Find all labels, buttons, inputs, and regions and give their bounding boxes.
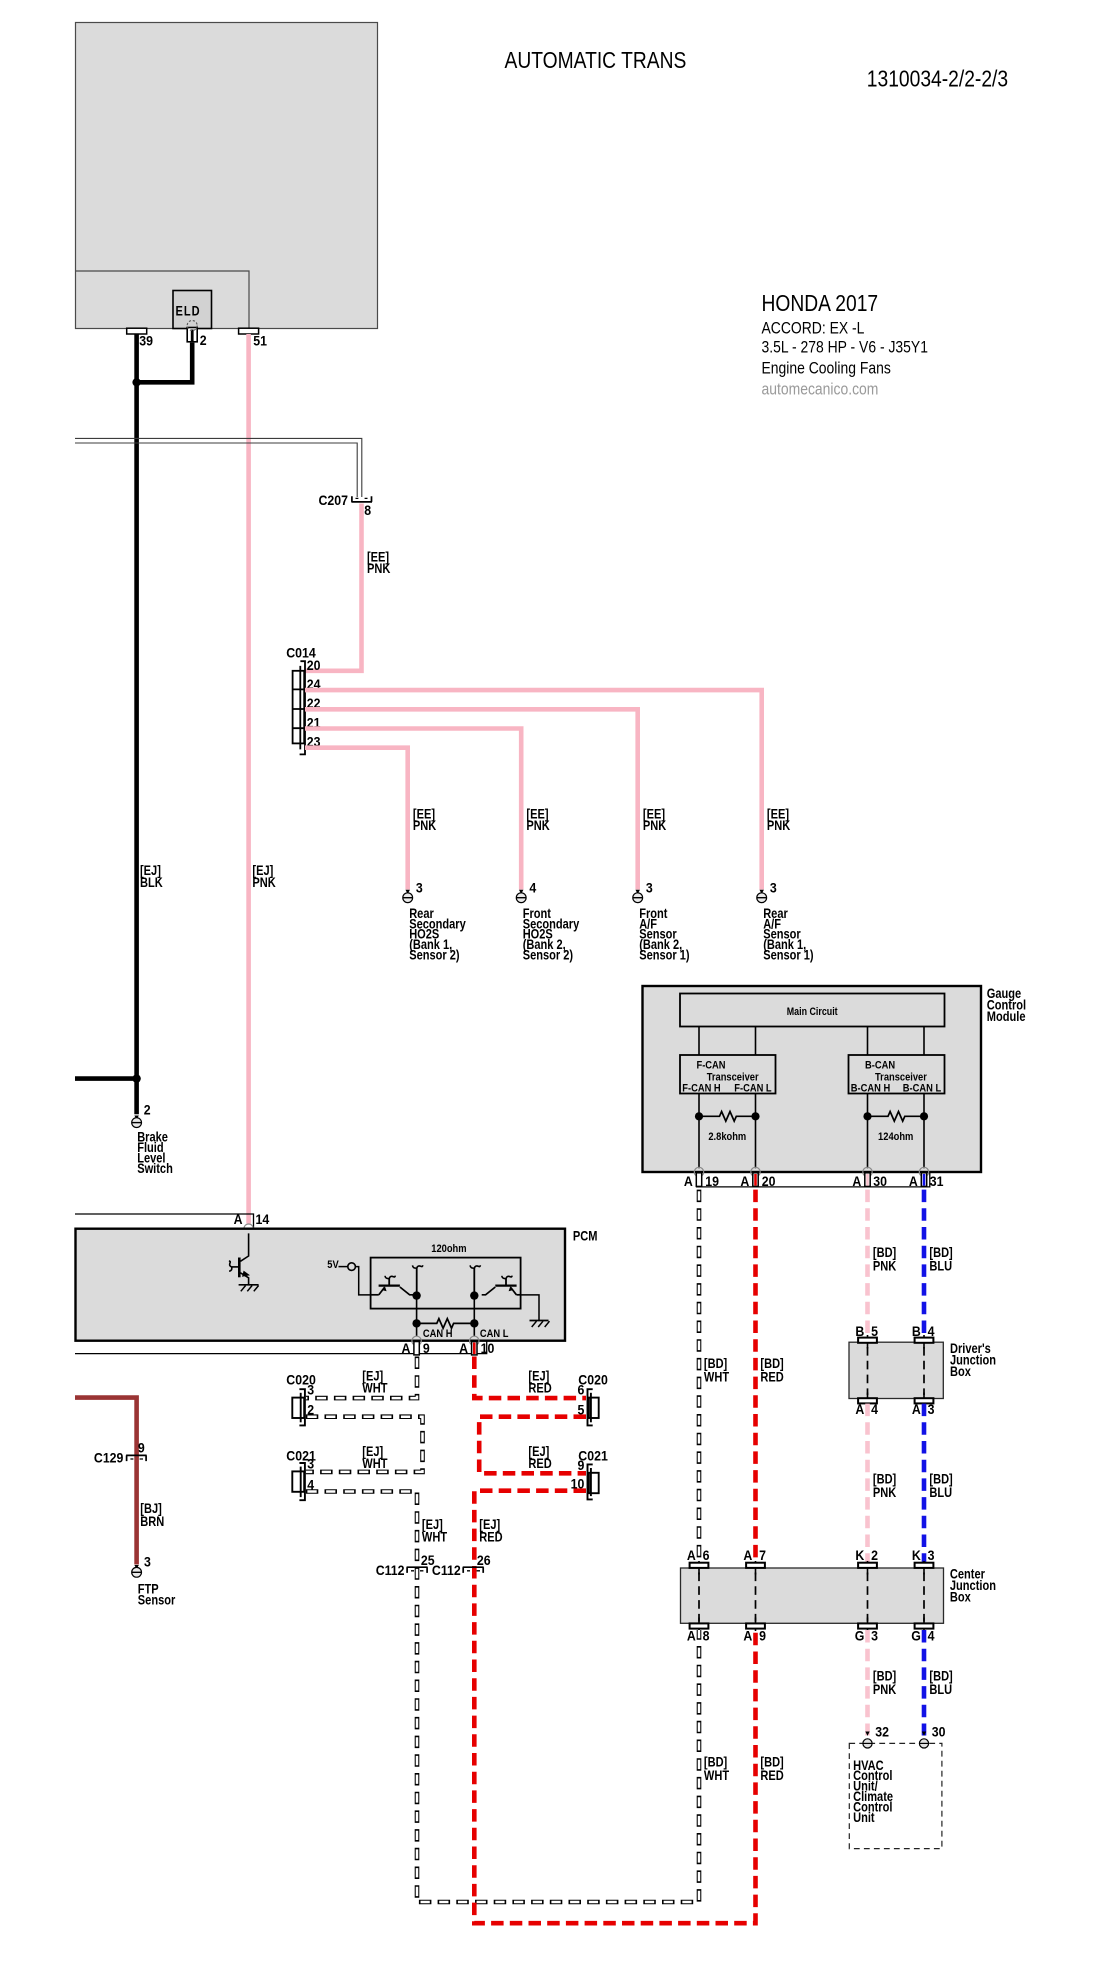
svg-text:C129: C129: [94, 1450, 124, 1466]
svg-text:39: 39: [139, 332, 153, 348]
svg-text:3: 3: [307, 1382, 314, 1398]
svg-text:BRN: BRN: [140, 1514, 164, 1529]
svg-text:Sensor: Sensor: [138, 1592, 176, 1607]
svg-text:7: 7: [759, 1547, 766, 1563]
svg-text:9: 9: [138, 1440, 145, 1456]
svg-text:6: 6: [703, 1547, 710, 1563]
svg-text:3: 3: [770, 880, 777, 896]
svg-text:ELD: ELD: [176, 304, 201, 319]
svg-text:Sensor 2): Sensor 2): [409, 947, 459, 962]
svg-text:WHT: WHT: [362, 1380, 388, 1395]
svg-text:A: A: [459, 1340, 468, 1356]
svg-text:4: 4: [871, 1401, 878, 1417]
svg-text:Unit: Unit: [853, 1810, 874, 1825]
svg-text:8: 8: [364, 502, 371, 518]
svg-text:A: A: [687, 1628, 696, 1644]
svg-text:Box: Box: [950, 1364, 971, 1379]
svg-text:BLK: BLK: [140, 875, 163, 890]
svg-text:WHT: WHT: [422, 1529, 448, 1544]
svg-text:3: 3: [928, 1547, 935, 1563]
svg-text:PNK: PNK: [252, 875, 275, 890]
svg-text:9: 9: [423, 1340, 430, 1356]
svg-text:HONDA 2017: HONDA 2017: [762, 290, 879, 316]
svg-text:5: 5: [871, 1323, 878, 1339]
svg-text:A: A: [852, 1173, 861, 1189]
svg-text:B: B: [912, 1323, 921, 1339]
svg-text:Switch: Switch: [137, 1161, 173, 1176]
svg-text:WHT: WHT: [704, 1768, 730, 1783]
svg-text:F-CAN: F-CAN: [697, 1060, 726, 1072]
svg-text:14: 14: [256, 1211, 270, 1227]
svg-text:20: 20: [307, 657, 321, 673]
svg-text:51: 51: [253, 332, 267, 348]
svg-text:RED: RED: [528, 1456, 551, 1471]
svg-text:2: 2: [200, 332, 207, 348]
svg-text:F-CAN H: F-CAN H: [682, 1083, 720, 1095]
svg-text:26: 26: [477, 1552, 491, 1568]
svg-text:Sensor 1): Sensor 1): [639, 947, 689, 962]
svg-text:A: A: [684, 1173, 693, 1189]
svg-text:2: 2: [144, 1102, 151, 1118]
svg-text:BLU: BLU: [929, 1485, 952, 1500]
svg-text:3: 3: [928, 1401, 935, 1417]
svg-text:31: 31: [930, 1173, 944, 1189]
svg-text:A: A: [401, 1340, 410, 1356]
svg-text:F-CAN L: F-CAN L: [734, 1083, 772, 1095]
svg-text:2: 2: [307, 1402, 314, 1418]
svg-text:C112: C112: [376, 1562, 405, 1578]
svg-text:6: 6: [578, 1382, 585, 1398]
svg-text:Box: Box: [950, 1589, 971, 1604]
svg-text:PNK: PNK: [643, 818, 666, 833]
svg-text:K: K: [912, 1547, 921, 1563]
svg-text:4: 4: [928, 1323, 935, 1339]
svg-text:PNK: PNK: [526, 818, 549, 833]
svg-text:A: A: [740, 1173, 749, 1189]
svg-text:PNK: PNK: [413, 818, 436, 833]
svg-text:B-CAN H: B-CAN H: [851, 1083, 890, 1095]
svg-text:WHT: WHT: [704, 1369, 730, 1384]
svg-text:3: 3: [307, 1456, 314, 1472]
svg-text:5V: 5V: [327, 1259, 338, 1271]
svg-text:30: 30: [932, 1724, 946, 1740]
svg-text:19: 19: [705, 1173, 719, 1189]
svg-text:4: 4: [928, 1628, 935, 1644]
svg-text:10: 10: [481, 1340, 495, 1356]
svg-text:A: A: [743, 1547, 752, 1563]
svg-text:C112: C112: [432, 1562, 461, 1578]
svg-text:3: 3: [646, 880, 653, 896]
svg-text:4: 4: [529, 880, 536, 896]
svg-text:B-CAN L: B-CAN L: [903, 1083, 942, 1095]
svg-text:Module: Module: [987, 1009, 1026, 1024]
svg-text:3: 3: [144, 1554, 151, 1570]
svg-text:BLU: BLU: [929, 1682, 952, 1697]
svg-text:RED: RED: [479, 1529, 502, 1544]
svg-text:PCM: PCM: [573, 1228, 598, 1243]
svg-text:PNK: PNK: [767, 818, 790, 833]
svg-text:PNK: PNK: [873, 1259, 896, 1274]
svg-text:A: A: [855, 1401, 864, 1417]
svg-text:RED: RED: [760, 1768, 783, 1783]
svg-text:K: K: [855, 1547, 864, 1563]
svg-text:C207: C207: [319, 492, 349, 508]
svg-text:PNK: PNK: [367, 561, 390, 576]
svg-text:A: A: [909, 1173, 918, 1189]
svg-text:RED: RED: [528, 1380, 551, 1395]
svg-text:G: G: [911, 1628, 921, 1644]
svg-text:Engine Cooling Fans: Engine Cooling Fans: [762, 359, 892, 378]
svg-text:Sensor 1): Sensor 1): [763, 947, 813, 962]
svg-text:PNK: PNK: [873, 1485, 896, 1500]
svg-text:B-CAN: B-CAN: [865, 1060, 895, 1072]
svg-text:Sensor 2): Sensor 2): [523, 947, 573, 962]
svg-text:2: 2: [871, 1547, 878, 1563]
svg-text:4: 4: [307, 1476, 314, 1492]
svg-text:G: G: [855, 1628, 865, 1644]
svg-text:CAN H: CAN H: [423, 1328, 453, 1340]
svg-text:automecanico.com: automecanico.com: [762, 380, 879, 399]
svg-text:ACCORD: EX -L: ACCORD: EX -L: [762, 319, 865, 338]
svg-text:9: 9: [578, 1457, 585, 1473]
svg-text:Main Circuit: Main Circuit: [787, 1006, 838, 1018]
svg-text:20: 20: [762, 1173, 776, 1189]
svg-text:5: 5: [578, 1402, 585, 1418]
svg-text:9: 9: [759, 1628, 766, 1644]
svg-text:3.5L - 278 HP - V6 - J35Y1: 3.5L - 278 HP - V6 - J35Y1: [762, 338, 928, 357]
svg-text:PNK: PNK: [873, 1682, 896, 1697]
svg-text:30: 30: [873, 1173, 887, 1189]
svg-text:2.8kohm: 2.8kohm: [708, 1131, 746, 1143]
svg-text:A: A: [687, 1547, 696, 1563]
svg-text:8: 8: [703, 1628, 710, 1644]
svg-text:RED: RED: [760, 1369, 783, 1384]
svg-text:BLU: BLU: [929, 1259, 952, 1274]
svg-text:124ohm: 124ohm: [878, 1131, 913, 1143]
svg-text:B: B: [855, 1323, 864, 1339]
svg-text:120ohm: 120ohm: [431, 1243, 466, 1255]
svg-text:A: A: [912, 1401, 921, 1417]
svg-text:3: 3: [871, 1628, 878, 1644]
svg-text:32: 32: [875, 1724, 889, 1740]
svg-text:10: 10: [571, 1476, 585, 1492]
svg-text:A: A: [234, 1211, 243, 1227]
svg-text:AUTOMATIC TRANS: AUTOMATIC TRANS: [505, 47, 687, 73]
svg-text:A: A: [743, 1628, 752, 1644]
svg-text:WHT: WHT: [362, 1456, 388, 1471]
svg-text:1310034-2/2-2/3: 1310034-2/2-2/3: [867, 66, 1008, 92]
svg-text:3: 3: [416, 880, 423, 896]
svg-text:CAN L: CAN L: [480, 1328, 509, 1340]
